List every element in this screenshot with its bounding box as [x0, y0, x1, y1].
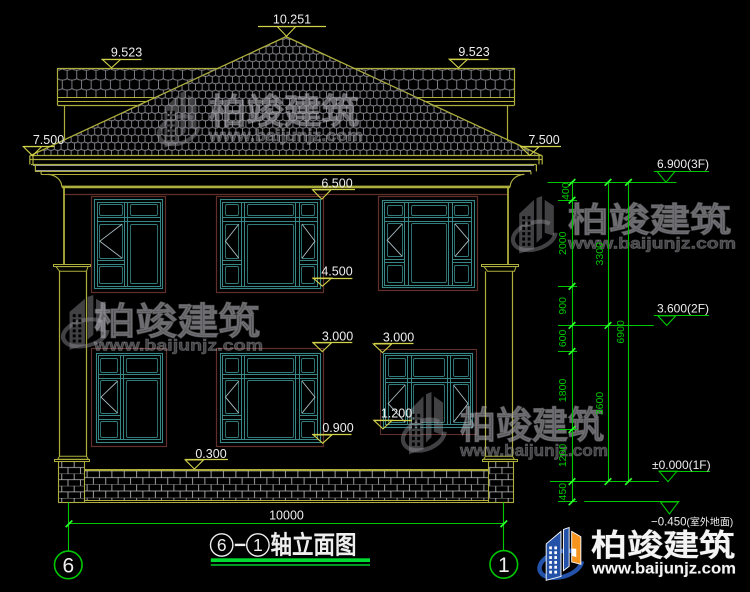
svg-text:柏竣建筑: 柏竣建筑	[460, 405, 604, 446]
svg-text:7.500: 7.500	[528, 133, 559, 147]
svg-text:9.523: 9.523	[458, 45, 489, 59]
svg-text:1200: 1200	[557, 444, 569, 468]
svg-text:6900: 6900	[615, 320, 627, 344]
svg-text:0.300: 0.300	[195, 447, 226, 461]
svg-text:6.900(3F): 6.900(3F)	[657, 157, 709, 171]
svg-text:6: 6	[62, 555, 74, 578]
svg-text:www.baijunjz.com: www.baijunjz.com	[208, 126, 363, 145]
svg-text:1: 1	[253, 535, 263, 555]
svg-text:900: 900	[557, 297, 569, 315]
svg-text:3300: 3300	[594, 242, 606, 266]
svg-text:600: 600	[557, 329, 569, 347]
svg-text:3600: 3600	[594, 392, 606, 416]
svg-text:2000: 2000	[557, 231, 569, 255]
svg-text:3.000: 3.000	[383, 330, 414, 344]
svg-text:−0.450(室外地面): −0.450(室外地面)	[651, 515, 733, 528]
svg-text:轴立面图: 轴立面图	[271, 531, 357, 560]
svg-text:7.500: 7.500	[33, 133, 64, 147]
svg-text:www.baijunjz.com: www.baijunjz.com	[459, 441, 608, 460]
svg-text:柏竣建筑: 柏竣建筑	[94, 301, 260, 342]
svg-text:1800: 1800	[557, 379, 569, 403]
svg-text:www.baijunjz.com: www.baijunjz.com	[93, 337, 263, 354]
svg-text:www.baijunjz.com: www.baijunjz.com	[591, 561, 736, 578]
svg-text:0.900: 0.900	[322, 421, 353, 435]
svg-text:6: 6	[217, 535, 227, 555]
svg-text:9.523: 9.523	[111, 46, 142, 60]
svg-text:柏竣建筑: 柏竣建筑	[591, 528, 736, 563]
svg-text:3.600(2F): 3.600(2F)	[657, 302, 709, 316]
svg-text:10.251: 10.251	[273, 13, 311, 27]
svg-text:3.000: 3.000	[322, 329, 353, 343]
svg-text:www.baijunjz.com: www.baijunjz.com	[567, 235, 736, 252]
svg-text:1: 1	[498, 554, 510, 577]
svg-text:400: 400	[560, 182, 572, 200]
svg-text:4.500: 4.500	[321, 264, 352, 278]
svg-text:450: 450	[557, 483, 569, 501]
svg-text:6.500: 6.500	[321, 176, 352, 190]
svg-text:1.200: 1.200	[381, 407, 412, 421]
svg-text:10000: 10000	[269, 509, 304, 523]
svg-text:柏竣建筑: 柏竣建筑	[568, 200, 731, 239]
svg-text:±0.000(1F): ±0.000(1F)	[652, 458, 711, 472]
